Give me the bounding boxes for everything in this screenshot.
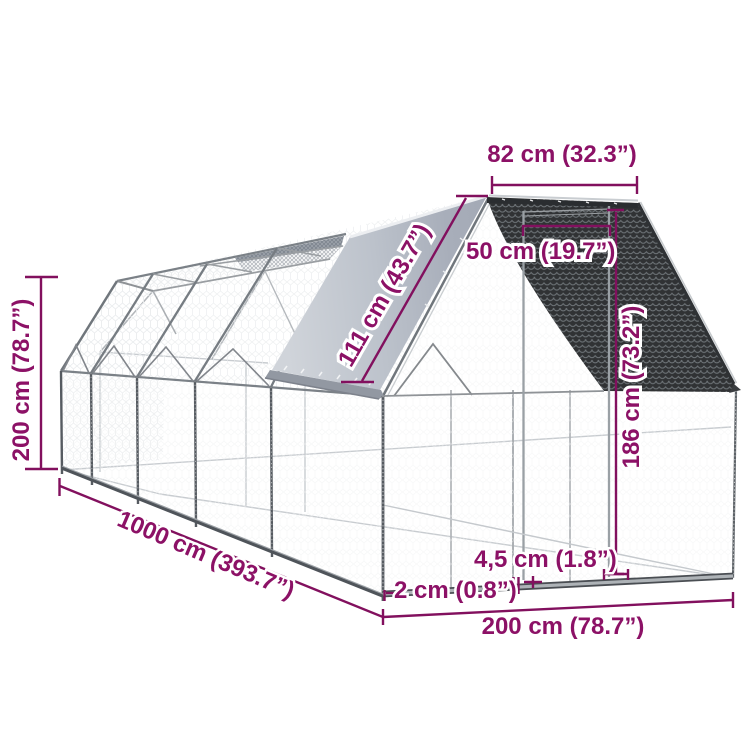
svg-text:82 cm (32.3”): 82 cm (32.3”) bbox=[487, 141, 636, 168]
svg-text:186 cm (73.2”): 186 cm (73.2”) bbox=[618, 306, 645, 469]
svg-text:50 cm (19.7”): 50 cm (19.7”) bbox=[466, 238, 615, 265]
svg-text:4,5 cm (1.8”): 4,5 cm (1.8”) bbox=[474, 546, 617, 573]
svg-text:200 cm (78.7”): 200 cm (78.7”) bbox=[8, 299, 35, 462]
svg-text:2 cm (0.8”): 2 cm (0.8”) bbox=[394, 577, 517, 604]
svg-text:200 cm (78.7”): 200 cm (78.7”) bbox=[482, 613, 645, 640]
